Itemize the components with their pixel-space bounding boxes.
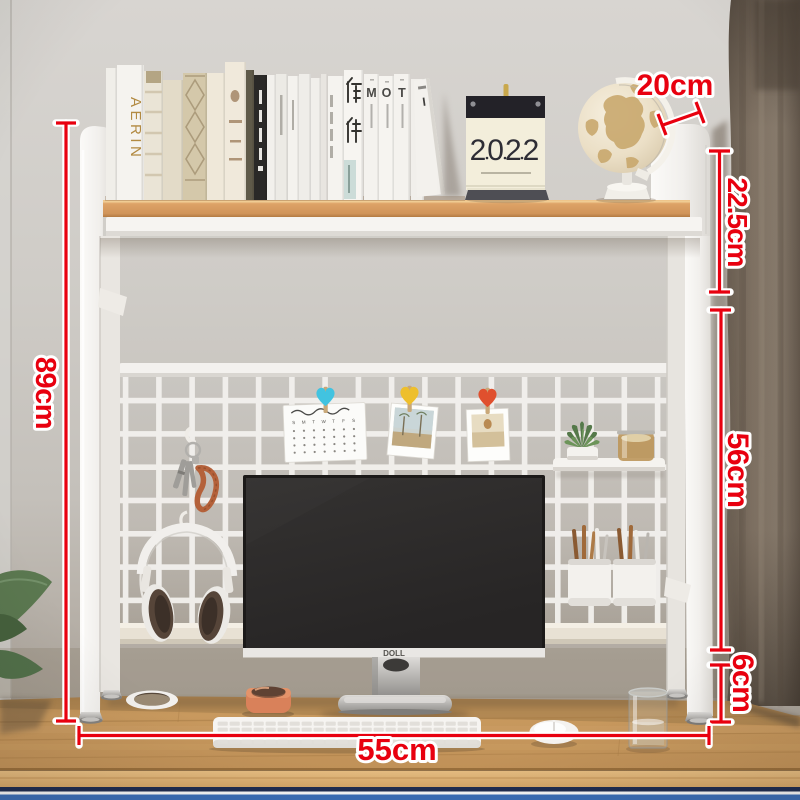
svg-text:20cm: 20cm (637, 69, 714, 102)
svg-text:56cm: 56cm (721, 433, 754, 508)
svg-text:55cm: 55cm (357, 732, 436, 767)
svg-text:6cm: 6cm (726, 654, 759, 713)
svg-text:89cm: 89cm (29, 357, 61, 429)
svg-text:22.5cm: 22.5cm (722, 178, 753, 267)
